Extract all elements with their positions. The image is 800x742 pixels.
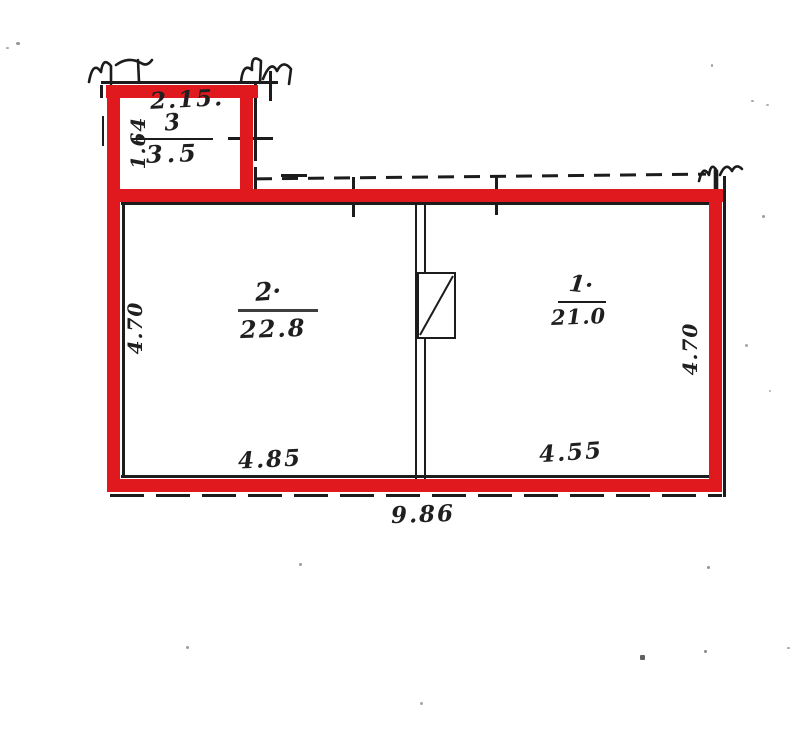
- scan-speck: [707, 566, 710, 569]
- room2-area: 22.8: [240, 316, 307, 342]
- room1-width-dim: 4.55: [538, 439, 603, 466]
- scan-speck: [745, 344, 748, 347]
- scan-speck: [762, 215, 765, 218]
- room3-width-dim: 2.15.: [149, 86, 224, 113]
- room3-height-dim: 1.64: [128, 108, 148, 178]
- scan-speck: [420, 702, 423, 705]
- main-right-outer-line: [723, 176, 726, 497]
- scan-speck: [751, 100, 754, 102]
- main-bottom-inner-line: [121, 475, 713, 478]
- room2-number: 2·: [254, 278, 282, 305]
- main-bottom-outer-dashed-line: [110, 494, 722, 497]
- room1-area: 21.0: [551, 305, 607, 328]
- scan-speck: [704, 650, 707, 653]
- highlight-main-bottom: [107, 479, 722, 492]
- room3-area: 3.5: [146, 141, 201, 167]
- room3-left-wall-line-lower: [102, 116, 104, 146]
- main-top-inner-line: [121, 202, 713, 205]
- door-diagonal: [419, 274, 454, 337]
- room3-number: 3: [163, 110, 181, 135]
- room1-height-dim: 4.70: [680, 314, 700, 384]
- floor-plan-scan: 2.15. 3 3.5 1.64 2· 22.8 1· 21.0 4.85 4.…: [0, 0, 800, 742]
- highlight-room3-right: [240, 85, 253, 197]
- scan-speck: [766, 104, 769, 106]
- highlight-main-top: [107, 189, 723, 202]
- room2-height-dim: 4.70: [125, 293, 145, 363]
- scan-speck: [787, 647, 790, 649]
- total-width-dim: 9.86: [391, 502, 456, 527]
- partition-wall-right-line-lower: [424, 338, 426, 479]
- scan-speck: [711, 64, 713, 67]
- partition-wall-left-line: [415, 204, 417, 479]
- room2-fraction-line: [238, 309, 318, 312]
- highlight-main-right: [709, 189, 722, 492]
- door-symbol: [417, 272, 456, 339]
- scan-speck: [186, 646, 189, 649]
- highlight-room3-left: [107, 85, 120, 202]
- room3-top-wall-line: [101, 81, 278, 84]
- main-top-outer-dashed-line: [256, 173, 706, 181]
- room1-number: 1·: [568, 272, 594, 297]
- scan-speck: [6, 47, 9, 49]
- partition-wall-right-line-upper: [424, 204, 426, 273]
- scan-speck: [640, 655, 645, 660]
- highlight-main-left: [107, 189, 120, 492]
- room3-top-wall-end-tick: [269, 71, 272, 101]
- room3-left-wall-line-upper: [100, 85, 103, 98]
- scan-speck: [769, 390, 771, 392]
- scan-speck: [299, 563, 302, 566]
- room2-width-dim: 4.85: [237, 446, 302, 472]
- scan-speck: [16, 42, 20, 45]
